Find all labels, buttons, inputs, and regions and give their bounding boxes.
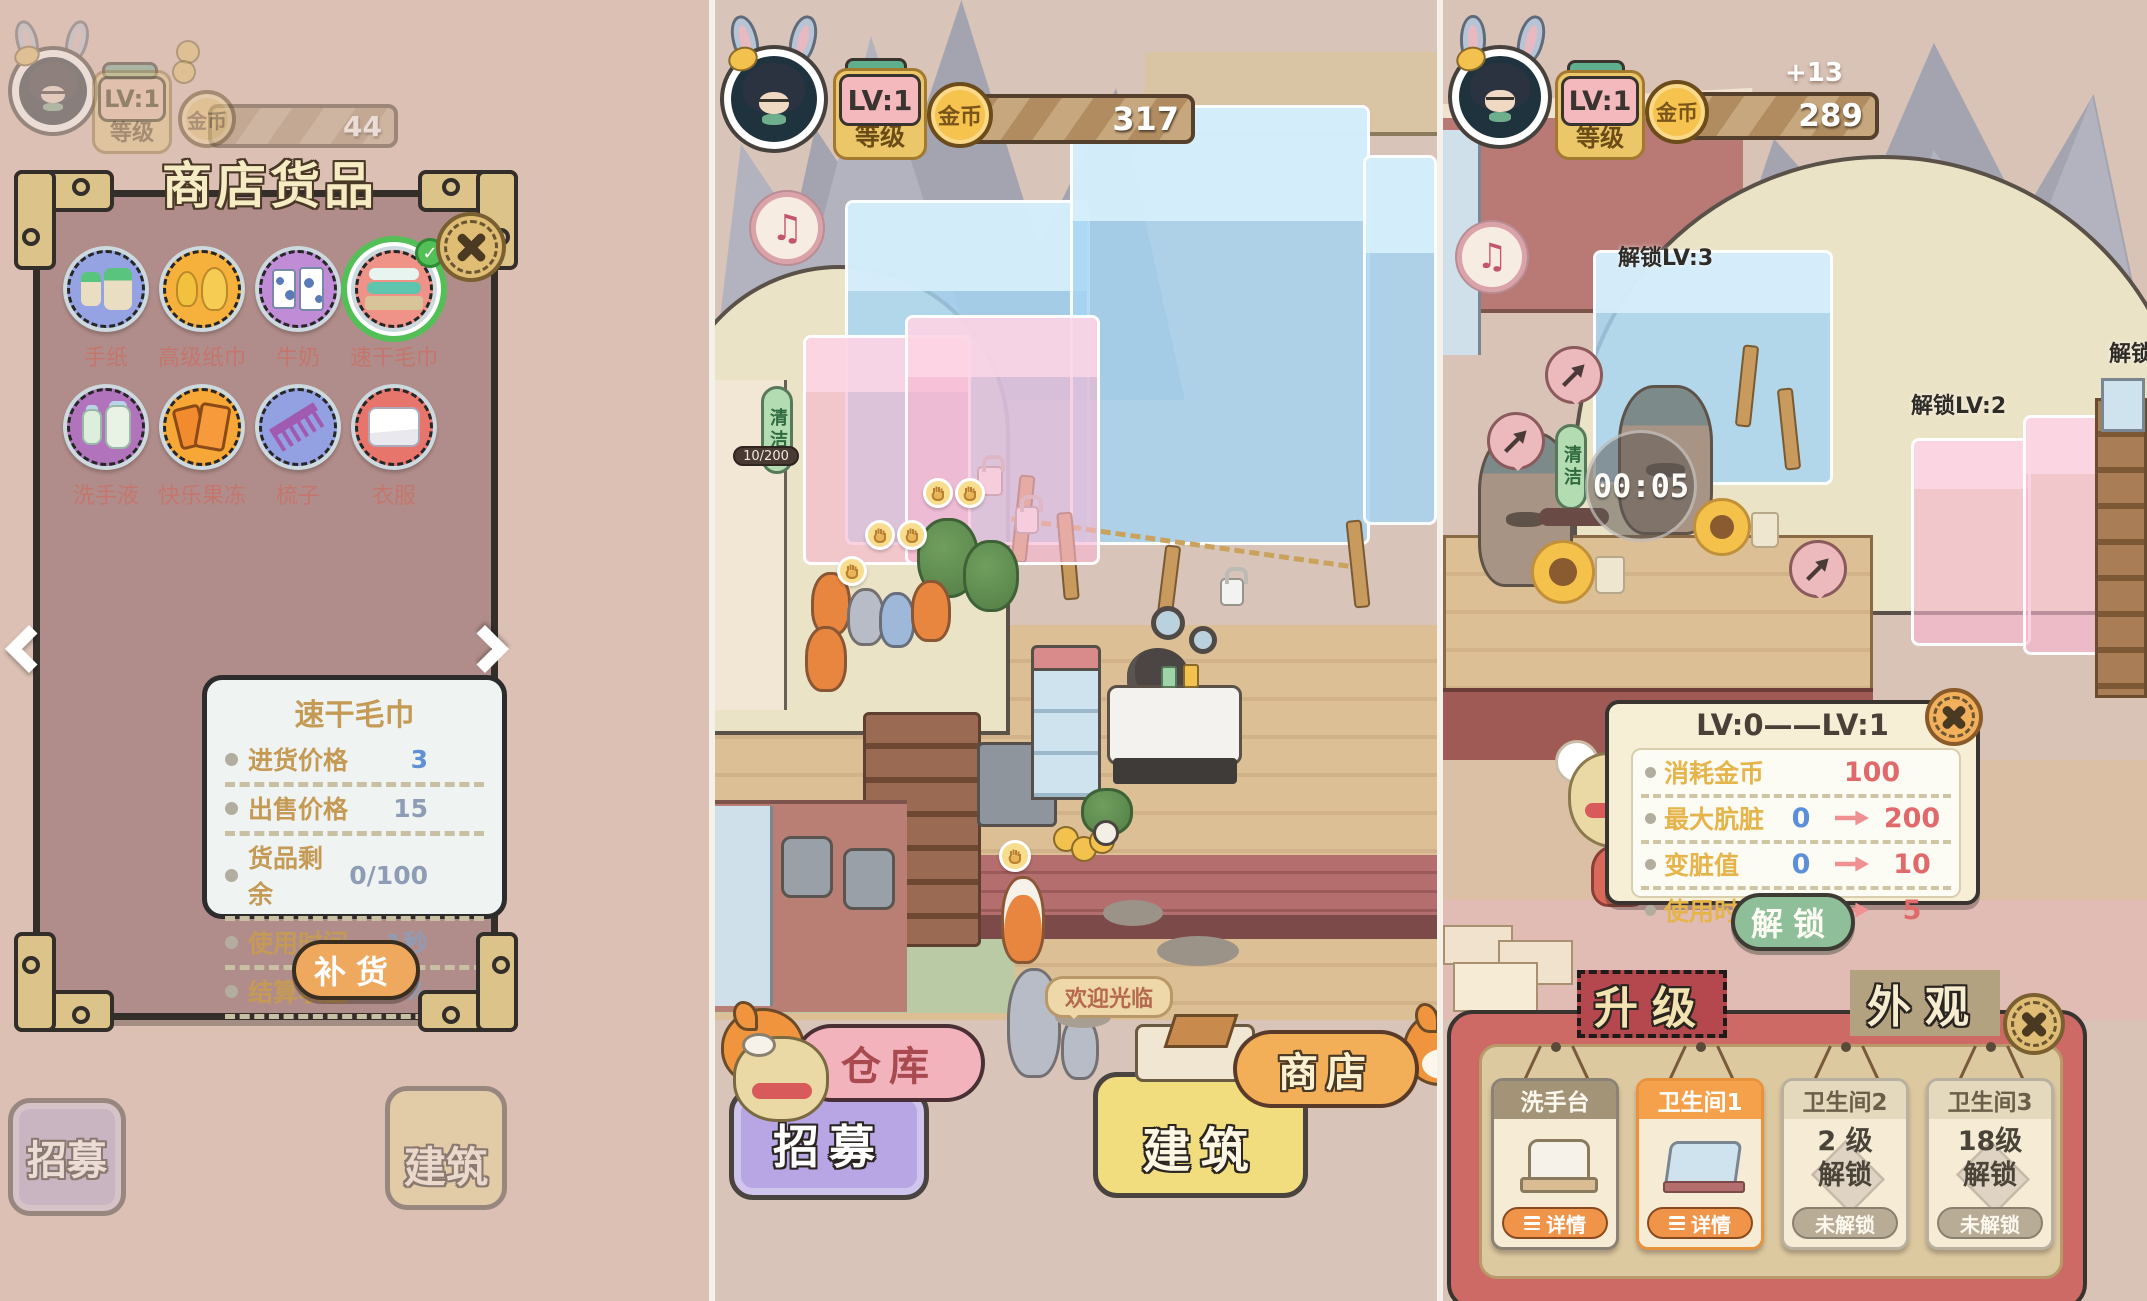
bathtub-base <box>1663 1181 1745 1193</box>
upgrade-card-bathroom1[interactable]: 卫生间1 详情 <box>1636 1078 1764 1250</box>
coin-progress-bar: 289 <box>1679 92 1879 140</box>
tap-hand-icon[interactable] <box>999 840 1031 872</box>
hand-dryer <box>843 848 895 910</box>
mandrake-face <box>1093 820 1119 846</box>
toilet-stall-pink <box>1911 438 2031 646</box>
unlock-level-label-edge: 解锁 <box>2109 336 2147 368</box>
ladder <box>2095 398 2147 698</box>
recruit-label: 招募 <box>27 1128 107 1186</box>
tap-hand-icon[interactable] <box>923 478 953 508</box>
panel-shop-goods: 等级 LV:1 44 金币 ♫ 招募 建筑 商店货品 <box>0 0 712 1301</box>
close-button[interactable] <box>1925 688 1983 746</box>
coin-icon: 金币 <box>1645 80 1709 144</box>
coin-icon: 金币 <box>178 90 236 148</box>
shop-tag[interactable]: 商店 <box>1233 1030 1419 1108</box>
stone <box>1157 936 1239 966</box>
tap-hand-icon[interactable] <box>897 520 927 550</box>
shop-item-premium-tissue[interactable]: 高级纸巾 <box>154 246 250 372</box>
coin-icon: 金币 <box>927 82 993 148</box>
kid-customer <box>879 592 915 648</box>
ladder-top-box <box>2101 378 2145 432</box>
level-badge: LV:1 <box>1561 76 1639 126</box>
unlock-button[interactable]: 解锁 <box>1731 893 1855 951</box>
coin-amount: 289 <box>1798 98 1863 134</box>
upgrade-arrow-bubble[interactable] <box>1487 412 1545 470</box>
detail-row: 出售价格15 <box>225 787 484 836</box>
tap-hand-icon[interactable] <box>837 556 867 586</box>
shop-item-happy-jelly[interactable]: 快乐果冻 <box>154 384 250 510</box>
close-button[interactable] <box>2003 993 2065 1055</box>
coin-progress-bar: 44 <box>208 104 398 148</box>
panel-divider <box>1437 0 1443 1301</box>
upgrade-dialog-title: LV:0——LV:1 <box>1609 708 1976 742</box>
close-button[interactable] <box>436 212 506 282</box>
music-button[interactable]: ♫ <box>1457 222 1527 292</box>
worker-fox <box>1001 876 1045 964</box>
arrow-right-icon <box>1835 811 1869 826</box>
music-note-icon: ♫ <box>1476 237 1507 277</box>
unlock-requirement: 18级解锁 <box>1929 1125 2051 1193</box>
cleaning-status-pill: 清洁 <box>1555 424 1587 510</box>
shop-counter <box>1107 685 1242 765</box>
shop-item-toilet-paper[interactable]: 手纸 <box>58 246 154 372</box>
coin-progress-bar: 317 <box>963 94 1195 144</box>
upgrade-arrow-bubble[interactable] <box>1545 346 1603 404</box>
upgrade-card-washbasin[interactable]: 洗手台 详情 <box>1491 1078 1619 1250</box>
hang-pin <box>1696 1042 1706 1052</box>
player-avatar[interactable] <box>720 15 850 165</box>
build-button-faded: 建筑 <box>385 1086 507 1210</box>
hang-pin <box>1986 1042 1996 1052</box>
unlock-level-label: 解锁LV:3 <box>1618 240 1713 272</box>
stock-meter: 10/200 <box>733 446 799 466</box>
coin-amount: 317 <box>1112 100 1179 138</box>
arrow-right-icon <box>1835 857 1869 872</box>
tap-hand-icon[interactable] <box>955 478 985 508</box>
bush-character <box>963 540 1019 612</box>
stone <box>1103 900 1163 926</box>
details-button[interactable]: 详情 <box>1502 1207 1608 1239</box>
tap-hand-icon[interactable] <box>865 520 895 550</box>
detail-title: 速干毛巾 <box>225 690 484 734</box>
unlock-requirement: 2 级解锁 <box>1784 1125 1906 1193</box>
build-label: 建筑 <box>404 1134 488 1195</box>
counter-base <box>1113 758 1237 784</box>
hang-pin <box>1551 1042 1561 1052</box>
upgrade-row: 最大肮脏0200 <box>1641 798 1951 844</box>
round-window <box>1151 606 1185 640</box>
recruit-npc-head <box>733 1036 829 1122</box>
prev-page-chevron[interactable] <box>12 632 46 666</box>
music-note-icon: ♫ <box>771 208 803 249</box>
upgrade-dialog: LV:0——LV:1 消耗金币100 最大肮脏0200 变脏值010 使用时间0… <box>1605 700 1980 905</box>
door-curtain <box>715 806 773 1006</box>
round-window <box>1189 626 1217 654</box>
padlock-icon <box>1220 578 1244 606</box>
locked-button: 未解锁 <box>1937 1207 2043 1239</box>
dialog-title: 商店货品 <box>150 146 390 218</box>
sunflower-soap <box>1531 540 1595 604</box>
upgrade-card-bathroom2[interactable]: 卫生间2 2 级解锁 未解锁 <box>1781 1078 1909 1250</box>
counter-item <box>1183 664 1199 688</box>
shop-items-grid: 手纸 高级纸巾 牛奶 ✓ 速干毛巾 <box>58 246 468 510</box>
recruit-button-faded: 招募 <box>8 1098 126 1216</box>
panel-main-scene: 清洁 10/200 <box>715 0 1437 1301</box>
counter-item <box>1161 666 1177 688</box>
coin-amount: 44 <box>343 110 382 143</box>
panel-divider <box>709 0 715 1301</box>
game-screen: 等级 LV:1 44 金币 ♫ 招募 建筑 商店货品 <box>0 0 2147 1301</box>
list-icon <box>1669 1216 1685 1230</box>
locked-button: 未解锁 <box>1792 1207 1898 1239</box>
hang-pin <box>1841 1042 1851 1052</box>
tab-upgrade[interactable]: 升级 <box>1577 970 1727 1038</box>
shop-item-milk[interactable]: 牛奶 <box>250 246 346 372</box>
cup <box>1595 556 1625 594</box>
welcome-speech-bubble: 欢迎光临 <box>1045 976 1173 1018</box>
locked-stall-blue <box>1070 105 1370 545</box>
upgrade-card-bathroom3[interactable]: 卫生间3 18级解锁 未解锁 <box>1926 1078 2054 1250</box>
detail-row: 货品剩余0/100 <box>225 836 484 921</box>
fox-customer <box>911 580 951 642</box>
unlock-level-label: 解锁LV:2 <box>1911 388 2006 420</box>
music-button[interactable]: ♫ <box>751 192 823 264</box>
details-button[interactable]: 详情 <box>1647 1207 1753 1239</box>
red-glasses-icon <box>752 1083 812 1099</box>
next-page-chevron[interactable] <box>468 632 502 666</box>
fox-customer <box>805 626 847 692</box>
locked-stall-blue <box>1363 155 1437 525</box>
detail-row: 进货价格3 <box>225 738 484 787</box>
countdown-timer: 00:05 <box>1585 430 1697 542</box>
nurse-cap-icon <box>742 1033 776 1057</box>
display-fridge <box>1031 668 1101 800</box>
upgrade-row: 消耗金币100 <box>1641 752 1951 798</box>
level-badge: LV:1 <box>98 76 166 122</box>
cup <box>1751 512 1779 548</box>
hand-dryer <box>781 836 833 898</box>
level-badge: LV:1 <box>839 74 921 126</box>
washbasin-base <box>1520 1177 1598 1193</box>
shop-item-hand-soap[interactable]: 洗手液 <box>58 384 154 510</box>
crate <box>1453 962 1538 1012</box>
item-detail-card: 速干毛巾 进货价格3 出售价格15 货品剩余0/100 使用时间1秒 结算收益0… <box>202 675 507 919</box>
sunflower-soap <box>1693 498 1751 556</box>
panel-upgrade-scene: 解锁LV:3 解锁LV:2 解锁 清洁 00:05 <box>1443 0 2147 1301</box>
tab-appearance[interactable]: 外观 <box>1850 970 2000 1036</box>
list-icon <box>1524 1216 1540 1230</box>
shop-item-quick-dry-towel[interactable]: ✓ 速干毛巾 <box>346 246 442 372</box>
upgrade-arrow-bubble[interactable] <box>1789 540 1847 598</box>
coin-gain-float: +13 <box>1785 58 1843 88</box>
upgrade-row: 变脏值010 <box>1641 844 1951 890</box>
restock-button[interactable]: 补货 <box>292 940 420 1000</box>
shop-item-comb[interactable]: 梳子 <box>250 384 346 510</box>
shop-item-clothes[interactable]: 衣服 <box>346 384 442 510</box>
